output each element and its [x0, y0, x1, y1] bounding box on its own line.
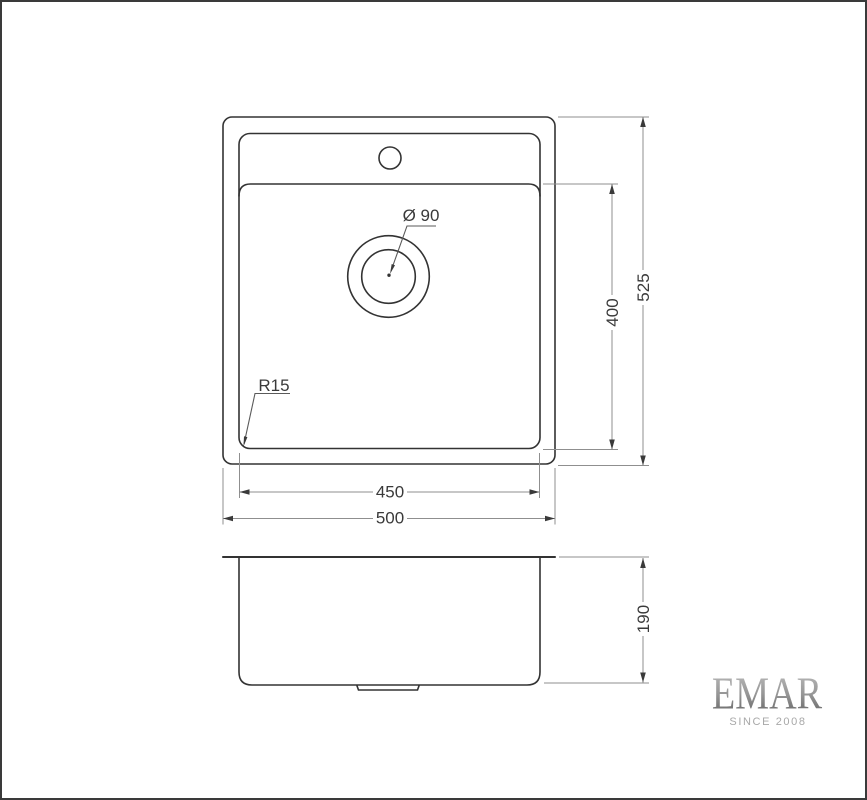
sink-body-profile [239, 558, 540, 685]
dimension-height: 190 [544, 557, 653, 683]
dim-arrow-bottom [609, 440, 615, 450]
outer-length-label: 525 [634, 273, 653, 301]
corner-radius-label: R15 [258, 376, 289, 395]
inner-width-label: 450 [376, 483, 404, 502]
drain-leader-line [391, 226, 436, 271]
drain-diameter-label: Ø 90 [403, 206, 440, 225]
brand-logo: EMAR SINCE 2008 [712, 668, 823, 728]
height-label: 190 [634, 605, 653, 633]
drain-center-dot [387, 274, 390, 277]
radius-leader-line [244, 394, 290, 445]
drain-diameter-callout: Ø 90 [390, 206, 439, 274]
brand-tagline: SINCE 2008 [729, 716, 806, 728]
drawing-page: Ø 90 R15 450 500 [0, 0, 867, 800]
dim-arrow-right [530, 489, 540, 495]
dimension-inner-width: 450 [240, 453, 540, 502]
dim-arrow-top [640, 558, 646, 568]
faucet-hole [379, 147, 401, 169]
outer-width-label: 500 [376, 509, 404, 528]
drain-leader-arrow [390, 264, 395, 274]
dim-arrow-top [609, 184, 615, 194]
dim-arrow-left [240, 489, 250, 495]
dim-arrow-left [223, 516, 233, 522]
sink-rim-edge [239, 134, 540, 449]
dimension-outer-length: 525 [558, 117, 653, 466]
dim-arrow-top [640, 117, 646, 127]
top-view [223, 117, 555, 464]
drain-fitting [357, 686, 419, 690]
dim-arrow-bottom [640, 673, 646, 683]
corner-radius-callout: R15 [244, 376, 291, 447]
sink-technical-drawing: Ø 90 R15 450 500 [2, 2, 867, 800]
dim-arrow-bottom [640, 456, 646, 466]
brand-name: EMAR [712, 668, 823, 719]
bowl-length-label: 400 [603, 298, 622, 326]
bowl-top-edge [239, 184, 540, 196]
dim-arrow-right [545, 516, 555, 522]
side-view [223, 557, 555, 690]
radius-leader-arrow [244, 436, 248, 446]
